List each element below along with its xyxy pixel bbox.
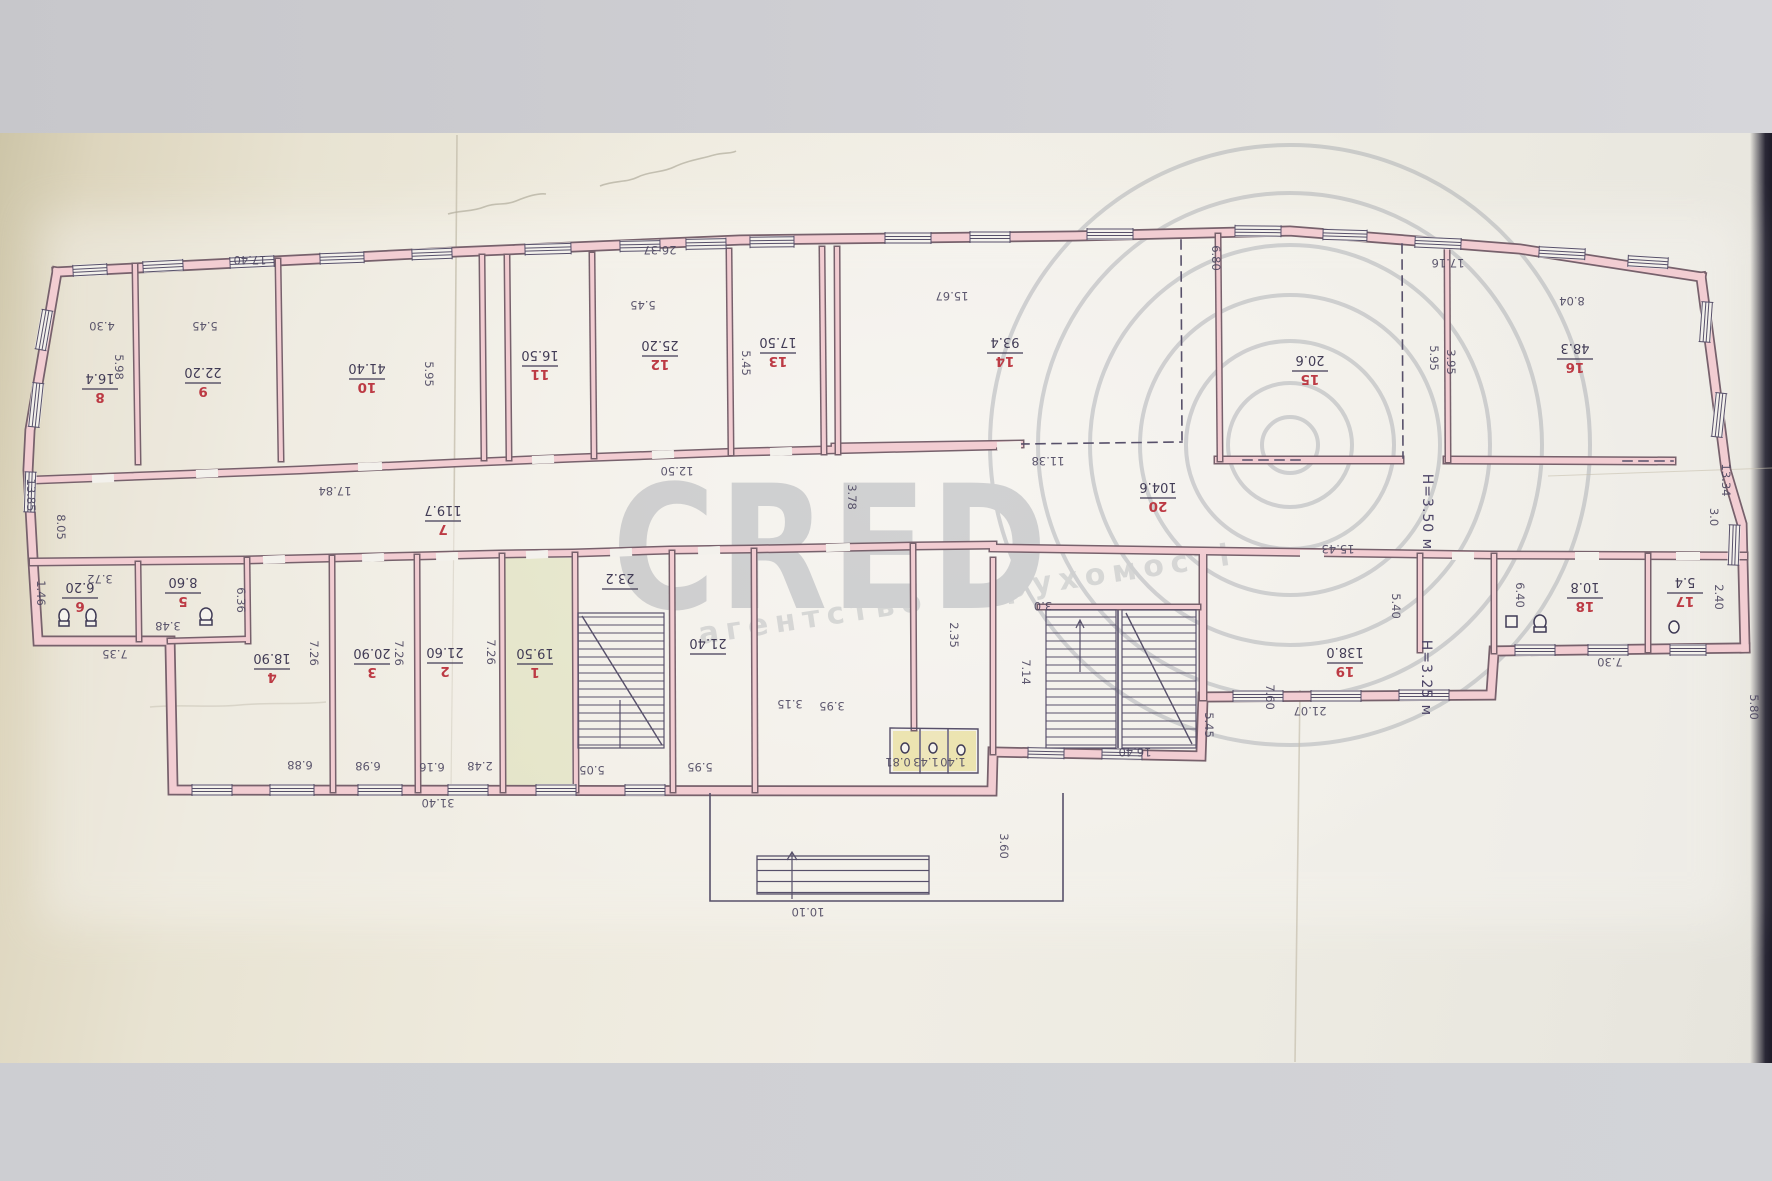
window-icon <box>1628 255 1669 269</box>
dimension-label: 26.37 <box>644 243 677 257</box>
room-area: 22.20 <box>184 364 221 379</box>
dimension-label: 3.60 <box>997 833 1011 859</box>
dimension-label: 4.30 <box>89 319 115 333</box>
room-number: 4 <box>267 669 276 685</box>
window-icon <box>1515 644 1555 656</box>
dimension-label: 10.10 <box>792 905 825 919</box>
room-area: 104.6 <box>1139 479 1176 494</box>
room-area: 10.8 <box>1571 579 1600 594</box>
dimension-label: 13.34 <box>1719 464 1733 497</box>
floor-plan-photo: CRED агентство Нерухомості <box>0 0 1772 1181</box>
room-area: 48.3 <box>1561 340 1590 355</box>
dimension-label: 6.16 <box>419 760 445 774</box>
stairwell-1 <box>578 613 664 748</box>
room-area: 119.7 <box>424 502 461 517</box>
room-number: 20 <box>1149 498 1168 514</box>
room-number: 12 <box>651 356 670 372</box>
dimension-label: 5.45 <box>1202 712 1216 738</box>
dimension-label: 7.60 <box>1263 684 1277 710</box>
room-number: 19 <box>1336 663 1355 679</box>
dimension-label: 0.81 <box>885 755 911 769</box>
room-area: 16.4 <box>86 370 115 385</box>
dimension-label: 5.45 <box>630 298 656 312</box>
dimension-label: 15.67 <box>936 289 969 303</box>
window-icon <box>1588 644 1628 656</box>
dimension-label: 3.72 <box>87 572 113 586</box>
dimension-label: 6.88 <box>287 758 313 772</box>
room-number: 13 <box>769 353 788 369</box>
dimension-label: 8.04 <box>1559 294 1585 308</box>
room-area: 16.50 <box>521 347 558 362</box>
ceiling-height-label: H=3.50 м <box>1419 474 1435 550</box>
dimension-label: 3.48 <box>155 619 181 633</box>
dimension-label: 7.35 <box>102 647 128 661</box>
dimension-label: 5.95 <box>422 361 436 387</box>
room-area: 41.40 <box>348 360 385 375</box>
room-area: 21.40 <box>689 635 726 650</box>
room-number: 14 <box>996 353 1015 369</box>
room-area: 18.90 <box>253 650 290 665</box>
room-area: 20.90 <box>353 645 390 660</box>
window-icon <box>1539 246 1586 260</box>
dimension-label: 1.43 <box>913 755 939 769</box>
dimension-label: 1.40 <box>940 755 966 769</box>
dimension-label: 3.95 <box>1444 349 1458 375</box>
window-icon <box>192 784 232 796</box>
window-icon <box>525 242 571 255</box>
window-icon <box>358 784 402 796</box>
room-number: 11 <box>531 366 550 382</box>
dimension-label: 6.36 <box>234 587 248 613</box>
dimension-label: 21.07 <box>1294 704 1327 718</box>
room-number: 17 <box>1676 593 1695 609</box>
window-icon <box>412 247 452 260</box>
dimension-label: 3.0 <box>1034 599 1052 613</box>
dimension-label: 2.40 <box>1712 584 1726 610</box>
dimension-label: 5.45 <box>192 319 218 333</box>
room-area: 21.60 <box>426 644 463 659</box>
dimension-label: 2.48 <box>467 759 493 773</box>
window-icon <box>625 784 665 796</box>
window-icon <box>448 784 488 796</box>
window-icon <box>686 238 726 251</box>
dimension-label: 6.80 <box>1209 245 1223 271</box>
dimension-label: 7.14 <box>1019 659 1033 685</box>
room-area: 20.6 <box>1296 352 1325 367</box>
room-area: 5.4 <box>1675 574 1696 589</box>
dimension-label: 12.50 <box>661 464 694 478</box>
room-number: 10 <box>358 379 377 395</box>
sink-icon <box>1506 616 1517 627</box>
dimension-label: 16.40 <box>1119 745 1152 759</box>
dimension-label: 5.95 <box>1427 345 1441 371</box>
window-icon <box>1235 225 1281 237</box>
dimension-label: 2.35 <box>947 622 961 648</box>
dimension-label: 6.40 <box>1513 582 1527 608</box>
room-number: 3 <box>367 664 376 680</box>
dimension-label: 7.26 <box>392 640 406 666</box>
window-icon <box>1415 236 1461 250</box>
room-number: 7 <box>438 521 447 537</box>
window-icon <box>1311 690 1361 702</box>
window-icon <box>143 259 184 273</box>
room-number: 8 <box>95 389 104 405</box>
floor-plan-drawing: CRED агентство Нерухомості <box>0 0 1772 1181</box>
room-number: 18 <box>1576 598 1595 614</box>
window-icon <box>1323 228 1367 241</box>
dimension-label: 6.98 <box>355 759 381 773</box>
room-number: 5 <box>178 593 187 609</box>
window-icon <box>970 231 1010 243</box>
room-number: 1 <box>530 664 539 680</box>
dimension-label: 13.85 <box>24 479 38 512</box>
dimension-label: 17.84 <box>319 484 352 498</box>
ceiling-height-label: H=3.25 м <box>1418 640 1434 716</box>
room-area: 17.50 <box>759 334 796 349</box>
dimension-label: 7.30 <box>1597 655 1623 669</box>
room-number: 16 <box>1566 359 1585 375</box>
window-icon <box>1727 525 1740 565</box>
dimension-label: 11.38 <box>1032 454 1065 468</box>
room-area: 93.4 <box>991 334 1020 349</box>
window-icon <box>1670 644 1706 656</box>
dimension-label: 3.0 <box>1707 508 1721 526</box>
dimension-label: 17.40 <box>234 253 267 267</box>
dimension-label: 7.26 <box>307 640 321 666</box>
dimension-label: 5.95 <box>687 760 713 774</box>
dimension-label: 5.05 <box>579 763 605 777</box>
dimension-label: 5.40 <box>1389 593 1403 619</box>
window-icon <box>73 263 108 277</box>
window-icon <box>320 251 364 265</box>
dimension-label: 17.16 <box>1432 256 1465 270</box>
dimension-label: 5.45 <box>739 350 753 376</box>
window-icon <box>536 784 576 796</box>
dimension-label: 8.05 <box>54 514 68 540</box>
window-icon <box>1087 228 1133 240</box>
room-area: 138.0 <box>1326 644 1363 659</box>
room-area: 23.2 <box>606 570 635 585</box>
room-area: 8.60 <box>169 574 198 589</box>
window-icon <box>885 232 931 244</box>
room-number: 9 <box>198 383 207 399</box>
room-number: 15 <box>1301 371 1320 387</box>
window-icon <box>750 236 794 248</box>
dimension-label: 5.80 <box>1747 694 1761 720</box>
dimension-label: 1.46 <box>34 580 48 606</box>
dimension-label: 7.26 <box>484 639 498 665</box>
dimension-label: 31.40 <box>422 796 455 810</box>
room-number: 6 <box>75 598 84 614</box>
dimension-label: 5.98 <box>112 354 126 380</box>
room-number: 2 <box>440 663 449 679</box>
dimension-label: 3.78 <box>845 484 859 510</box>
window-icon <box>270 784 314 796</box>
dimension-label: 3.15 <box>777 697 803 711</box>
room-area: 25.20 <box>641 337 678 352</box>
room-area: 19.50 <box>516 645 553 660</box>
dimension-label: 3.95 <box>819 699 845 713</box>
dimension-label: 15.43 <box>1322 542 1355 556</box>
